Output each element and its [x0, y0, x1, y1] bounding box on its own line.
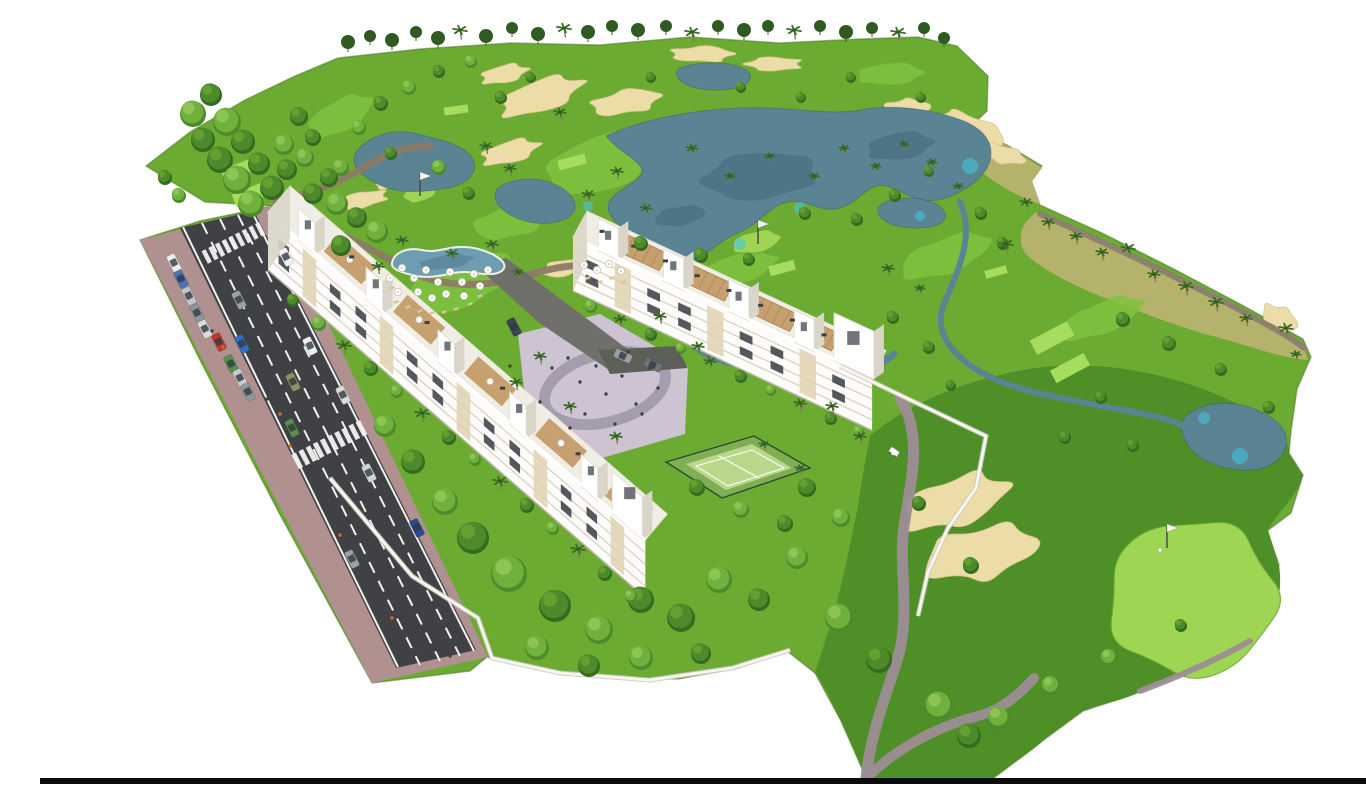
rooftop-ac-unit: [726, 289, 731, 292]
tree: [410, 26, 422, 41]
sun-umbrella: [434, 278, 441, 285]
shallow-water-highlight: [583, 201, 593, 211]
sun-umbrella: [605, 260, 612, 267]
tower-window: [801, 322, 807, 331]
tower-window: [624, 487, 635, 499]
balcony-recess: [707, 306, 723, 358]
rooftop-ac-unit: [822, 333, 827, 336]
scene-svg: [40, 16, 1366, 784]
person-figure: [448, 654, 451, 657]
balcony-recess: [800, 349, 816, 401]
roof-umbrella: [416, 317, 422, 323]
roof-umbrella: [558, 440, 564, 446]
rooftop-ac-unit: [695, 274, 700, 277]
tree: [491, 556, 527, 592]
tower-window: [444, 342, 450, 351]
tower-window: [588, 466, 594, 475]
rooftop-ac-unit: [600, 230, 605, 233]
tower-window: [605, 231, 611, 240]
person-figure: [390, 616, 393, 619]
person-figure: [376, 600, 379, 603]
person-figure: [508, 364, 511, 367]
person-figure: [278, 412, 281, 415]
golfer-figure: [1158, 548, 1162, 552]
person-figure: [550, 366, 553, 369]
person-figure: [626, 350, 629, 353]
person-figure: [221, 345, 224, 348]
rooftop-ac-unit: [663, 259, 668, 262]
person-figure: [301, 461, 304, 464]
person-figure: [568, 426, 571, 429]
sun-umbrella: [386, 274, 393, 281]
sun-umbrella: [476, 282, 483, 289]
person-figure: [353, 551, 356, 554]
tree: [385, 33, 399, 50]
rooftop-ac-unit: [349, 255, 354, 258]
person-figure: [538, 400, 541, 403]
sun-umbrella: [428, 294, 435, 301]
sun-umbrella: [398, 264, 405, 271]
palm-tree: [453, 26, 467, 40]
sun-umbrella: [422, 266, 429, 273]
shallow-water-highlight: [734, 238, 746, 250]
sun-umbrella: [442, 290, 449, 297]
tree: [631, 23, 645, 40]
tree: [660, 20, 672, 35]
tower-window: [735, 292, 741, 301]
stair-tower-side: [642, 490, 652, 539]
tree: [479, 29, 493, 46]
shallow-water-highlight: [1232, 448, 1248, 464]
shallow-water-highlight: [1198, 412, 1210, 424]
tree: [200, 83, 222, 106]
person-figure: [594, 364, 597, 367]
person-figure: [656, 386, 659, 389]
tree: [539, 590, 571, 622]
tree: [506, 22, 518, 37]
shallow-water-highlight: [915, 211, 925, 221]
person-figure: [210, 329, 213, 332]
rooftop-ac-unit: [576, 452, 581, 455]
tree: [814, 20, 826, 35]
rooftop-ac-unit: [425, 321, 430, 324]
sun-umbrella: [394, 288, 401, 295]
tree: [737, 23, 751, 40]
tree: [866, 22, 878, 37]
person-figure: [265, 397, 268, 400]
tree: [606, 20, 618, 35]
person-figure: [634, 402, 637, 405]
sun-umbrella: [593, 266, 600, 273]
tree: [172, 188, 186, 203]
rooftop-ac-unit: [790, 319, 795, 322]
tree: [364, 30, 376, 45]
tree: [531, 27, 545, 44]
sun-umbrella: [410, 274, 417, 281]
person-figure: [613, 422, 616, 425]
sun-umbrella: [470, 270, 477, 277]
person-figure: [578, 380, 581, 383]
palm-tree: [787, 26, 801, 40]
person-figure: [288, 444, 291, 447]
roof-umbrella: [487, 378, 493, 384]
tree: [341, 35, 355, 52]
palm-tree: [557, 24, 571, 38]
tree: [712, 20, 724, 35]
sun-umbrella: [458, 278, 465, 285]
sun-umbrella: [460, 292, 467, 299]
person-figure: [648, 366, 651, 369]
person-figure: [620, 374, 623, 377]
tree: [762, 20, 774, 35]
sun-umbrella: [580, 261, 587, 268]
tower-window: [670, 261, 676, 270]
person-figure: [604, 392, 607, 395]
rooftop-ac-unit: [758, 304, 763, 307]
bottom-black-bar: [40, 778, 1366, 784]
person-figure: [640, 412, 643, 415]
stair-tower-side: [874, 324, 884, 379]
tree: [918, 22, 930, 37]
tree: [180, 101, 206, 127]
frame-layer: [40, 778, 1366, 784]
tree: [457, 522, 489, 554]
tree: [431, 31, 445, 48]
sun-umbrella: [484, 266, 491, 273]
rooftop-ac-unit: [500, 387, 505, 390]
tower-window: [847, 331, 859, 345]
tower-window: [305, 220, 311, 229]
sun-umbrella: [414, 288, 421, 295]
sun-umbrella: [617, 267, 624, 274]
tree: [581, 25, 595, 42]
sun-umbrella: [446, 268, 453, 275]
person-figure: [583, 412, 586, 415]
shallow-water-highlight: [962, 158, 978, 174]
render-figure: [40, 16, 1366, 784]
tower-window: [516, 404, 522, 413]
person-figure: [338, 533, 341, 536]
person-figure: [566, 356, 569, 359]
tower-window: [373, 279, 379, 288]
